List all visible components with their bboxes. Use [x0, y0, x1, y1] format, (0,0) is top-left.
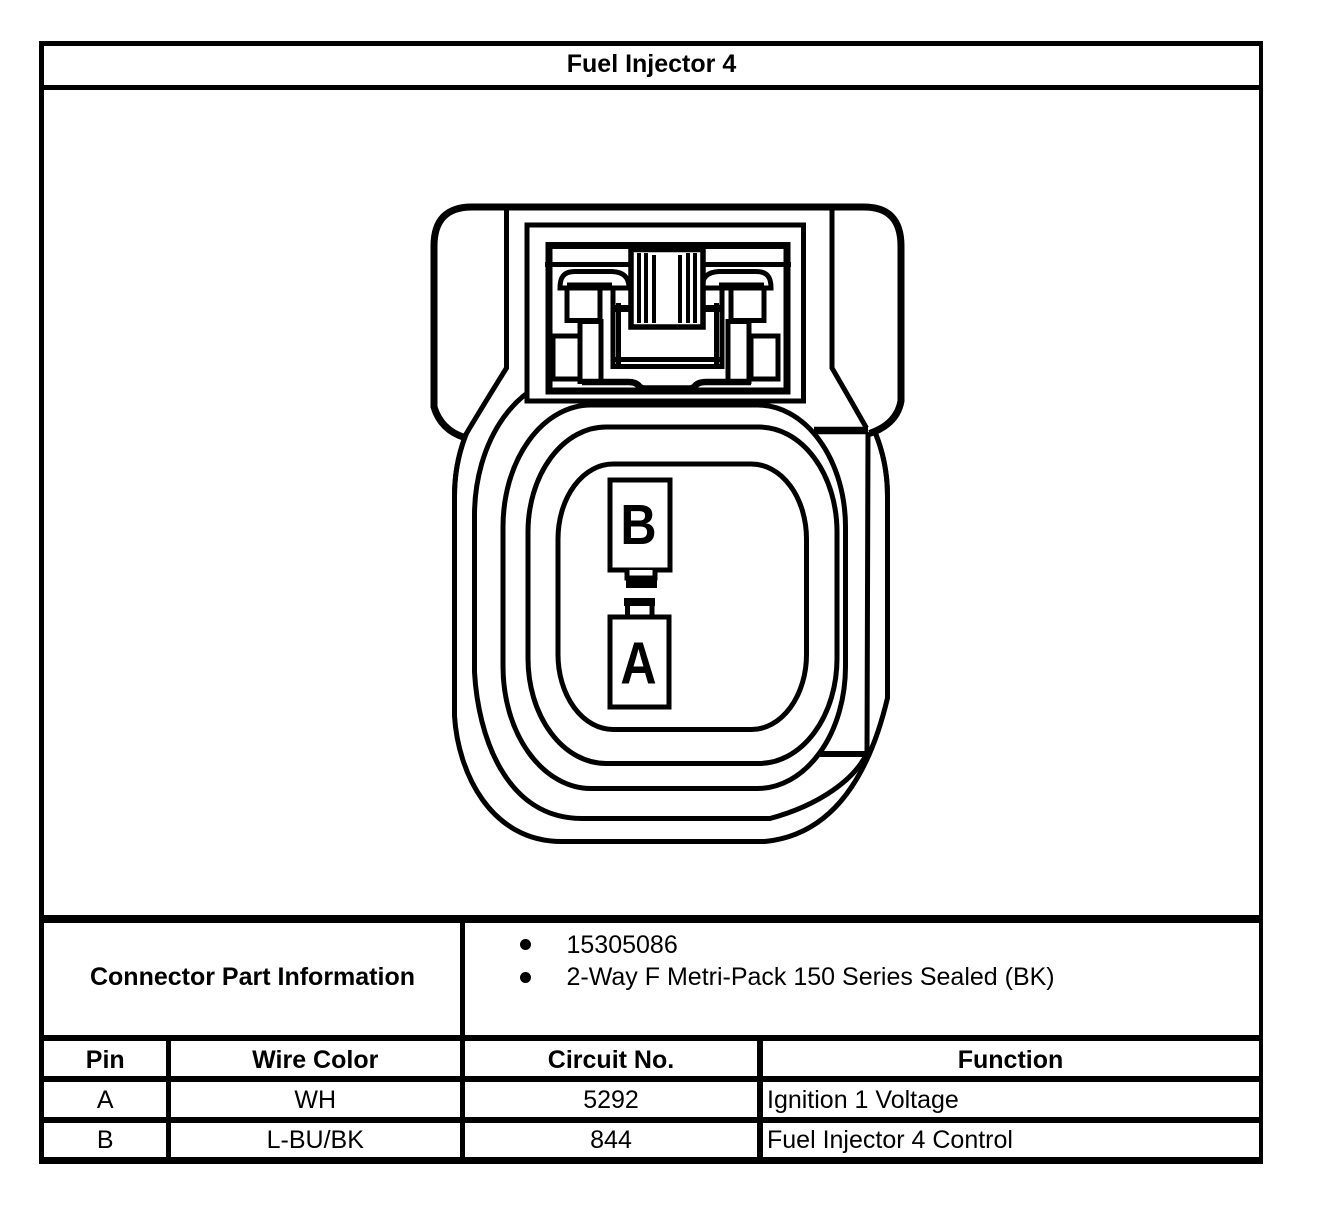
svg-text:B: B	[620, 493, 656, 557]
svg-text:A: A	[620, 630, 656, 697]
